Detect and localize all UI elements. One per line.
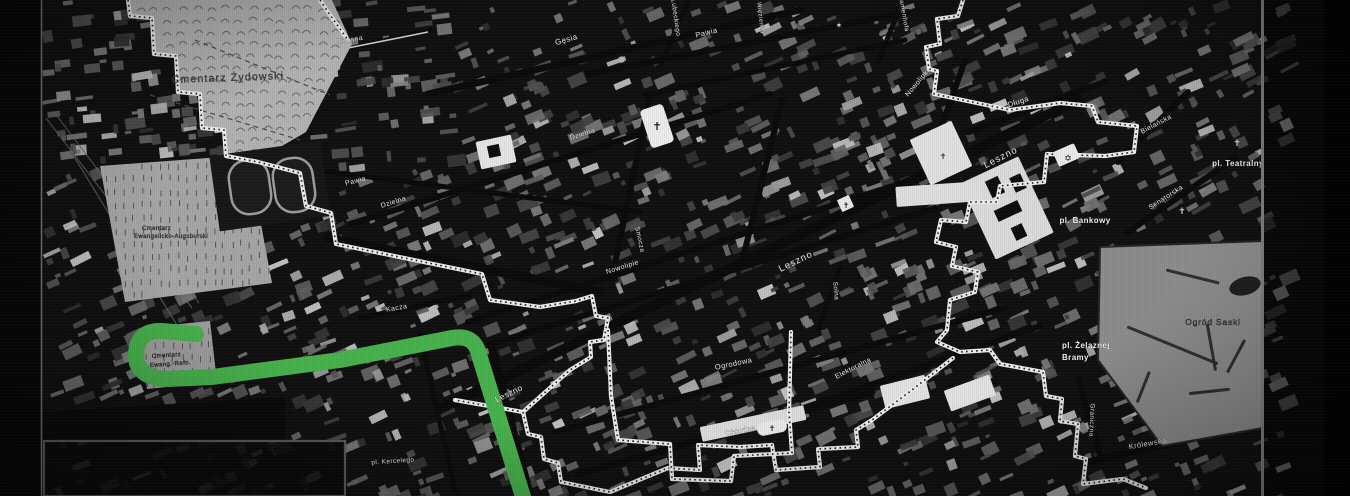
map-label: pl. Bankowy	[1059, 216, 1110, 225]
city-block	[130, 81, 141, 92]
city-block	[447, 154, 467, 168]
city-block	[132, 111, 139, 115]
city-block	[449, 113, 456, 118]
synagogue-star-icon: ✶	[836, 21, 843, 30]
city-block	[172, 93, 180, 101]
map-label: Ogród Saski	[1185, 317, 1241, 327]
city-block	[377, 65, 382, 71]
city-block	[172, 109, 181, 119]
church-icon-chlodna: ✝	[769, 424, 776, 433]
city-block	[181, 107, 193, 117]
city-block	[84, 63, 101, 74]
star-of-david-icon: ✡	[1064, 154, 1072, 164]
city-block	[151, 134, 162, 145]
city-block	[72, 14, 92, 27]
city-block	[417, 157, 426, 163]
city-block	[77, 106, 87, 112]
map-label: Cmentarz	[142, 226, 171, 232]
church-cross-icon-leszno: ✝	[843, 201, 850, 210]
city-block	[353, 18, 368, 27]
kercelego-square-outline	[44, 441, 345, 496]
city-block	[112, 60, 124, 70]
city-block	[351, 146, 364, 158]
city-block	[90, 110, 96, 114]
church-cross-icon-bielanska: ✝	[1233, 139, 1241, 149]
city-block	[139, 135, 152, 144]
city-block	[100, 156, 106, 163]
city-block	[42, 69, 54, 76]
city-block	[424, 105, 429, 109]
map-label: pl. Teatralny	[1212, 159, 1264, 168]
city-block	[331, 148, 349, 159]
city-block	[188, 134, 196, 140]
city-block	[54, 63, 61, 72]
map-label: Graniczna	[1087, 403, 1095, 436]
city-block	[71, 38, 83, 49]
city-block	[436, 23, 452, 36]
left-dark-margin	[0, 0, 41, 496]
city-block	[83, 113, 102, 123]
city-block	[113, 124, 118, 134]
city-block	[359, 51, 370, 58]
right-dark-margin	[1324, 0, 1350, 496]
church-icon-dzielna: ✝	[652, 120, 661, 133]
city-block	[178, 143, 190, 156]
map-label: pl. Żelaznej	[1062, 341, 1110, 350]
church-cross-icon-senatorska: ✝	[1178, 207, 1186, 217]
city-block	[113, 11, 122, 21]
historical-map-canvas[interactable]: ✝✝✝✡✶✝✝✝Cmentarz ŻydowskiCmentarzEwangel…	[0, 0, 1350, 496]
map-viewport[interactable]: ✝✝✝✡✶✝✝✝Cmentarz ŻydowskiCmentarzEwangel…	[0, 0, 1350, 496]
city-block	[390, 119, 399, 129]
city-block	[114, 36, 130, 47]
city-block	[386, 86, 395, 97]
city-block	[338, 162, 347, 171]
map-label: Bramy	[1062, 353, 1089, 362]
city-block	[378, 112, 389, 121]
map-label: Ewangelicko-Augsburski	[134, 234, 208, 240]
city-block	[150, 102, 168, 114]
prison-block-inner	[487, 144, 501, 158]
city-block	[336, 93, 346, 100]
church-cross-icon-west: ✝	[940, 152, 947, 161]
city-block	[56, 90, 71, 101]
city-block	[42, 30, 53, 43]
